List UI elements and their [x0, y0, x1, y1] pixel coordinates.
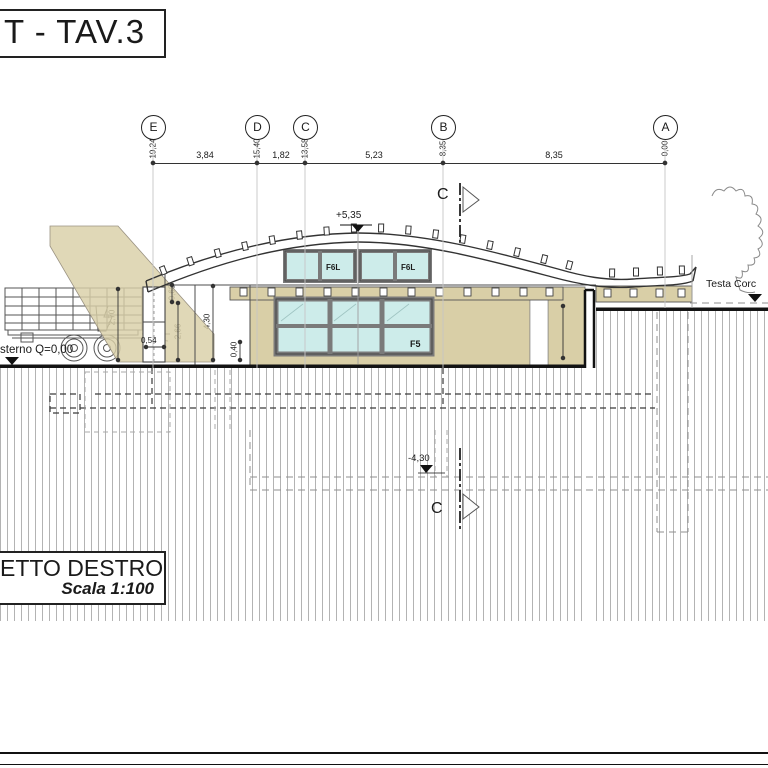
- dim-span-ba: 8,35: [534, 150, 574, 160]
- testa-note: Testa Corc: [706, 278, 756, 290]
- grid-bubble-a: A: [653, 115, 678, 140]
- left-column-section: [143, 287, 165, 362]
- foundation-dashed: [50, 368, 655, 413]
- grid-bubble-d: D: [245, 115, 270, 140]
- sheet-border-line: [0, 752, 768, 754]
- ground-note: sterno Q=0,00: [0, 344, 73, 356]
- foundation-elevation: -4,30: [408, 453, 430, 464]
- view-scale: Scala 1:100: [61, 579, 154, 599]
- section-letter-top: C: [437, 186, 449, 204]
- dim-span-cb: 5,23: [354, 150, 394, 160]
- dim-span-dc: 1,82: [261, 150, 301, 160]
- elevation-linework: [0, 0, 768, 768]
- main-window-f5: [276, 299, 432, 354]
- window-label-f5: F5: [410, 339, 421, 349]
- section-letter-bottom: C: [431, 500, 443, 518]
- dim-span-ed: 3,84: [185, 150, 225, 160]
- window-label-f6l-left: F6L: [326, 263, 340, 272]
- foundation-dashed-light: [85, 370, 447, 477]
- sheet-title-box: T - TAV.3: [0, 9, 166, 58]
- drawing-sheet: E D C B A 19,24 15,40 13,58 8,35 0,00 3,…: [0, 0, 768, 768]
- grid-bubble-b: B: [431, 115, 456, 140]
- dim-plinth: 0,54: [141, 336, 157, 345]
- grid-bubble-e: E: [141, 115, 166, 140]
- view-title: ETTO DESTRO: [0, 555, 163, 582]
- view-title-box: ETTO DESTRO Scala 1:100: [0, 551, 166, 605]
- sheet-border-line-thin: [0, 764, 768, 765]
- dimension-chain-line: [153, 163, 665, 164]
- window-label-f6l-right: F6L: [401, 263, 415, 272]
- right-retaining-wall: [585, 290, 594, 368]
- grid-bubble-c: C: [293, 115, 318, 140]
- sheet-title: T - TAV.3: [4, 13, 145, 51]
- ramp-band: [50, 226, 214, 362]
- tree-outline: [712, 187, 763, 293]
- apex-elevation: +5,35: [336, 210, 361, 221]
